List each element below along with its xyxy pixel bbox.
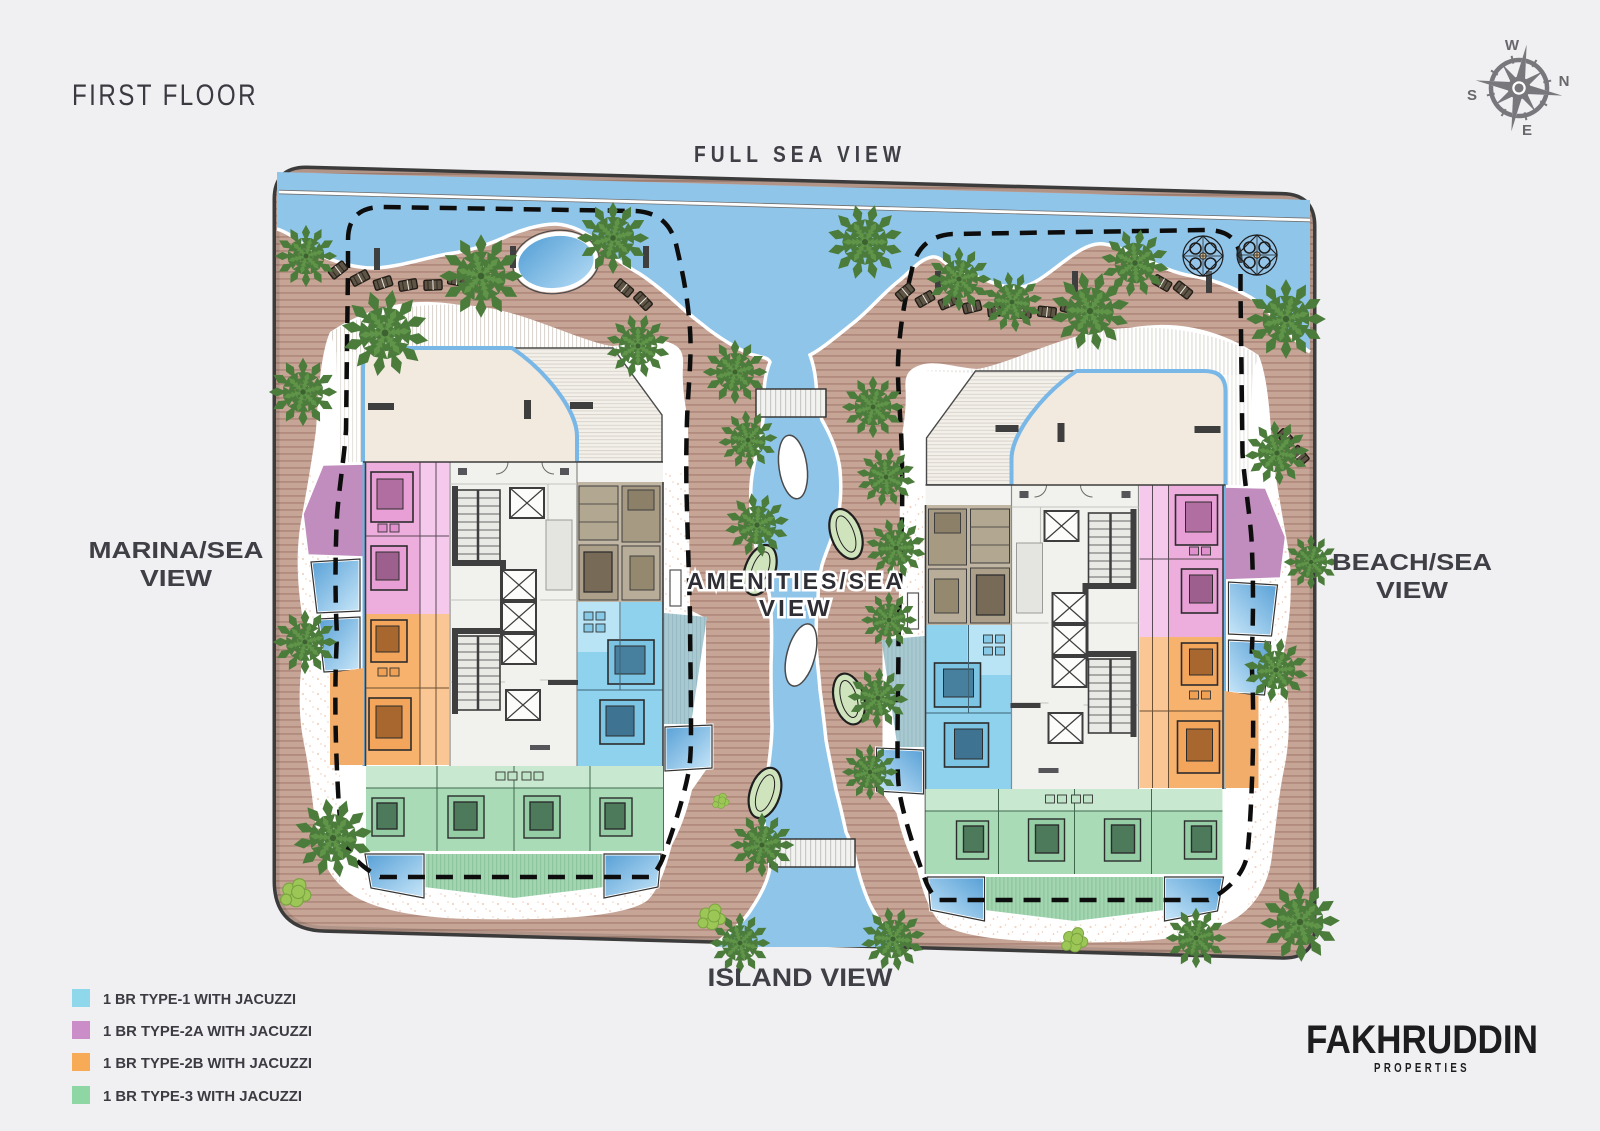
- svg-text:1 BR TYPE-1 WITH JACUZZI: 1 BR TYPE-1 WITH JACUZZI: [103, 991, 296, 1008]
- svg-text:1 BR TYPE-2A WITH JACUZZI: 1 BR TYPE-2A WITH JACUZZI: [103, 1023, 312, 1040]
- svg-text:VIEW: VIEW: [140, 565, 212, 591]
- svg-text:S: S: [1467, 87, 1477, 104]
- svg-text:VIEW: VIEW: [759, 595, 833, 621]
- svg-text:BEACH/SEA: BEACH/SEA: [1332, 549, 1492, 575]
- svg-text:1 BR TYPE-2B WITH JACUZZI: 1 BR TYPE-2B WITH JACUZZI: [103, 1055, 312, 1072]
- svg-text:PROPERTIES: PROPERTIES: [1374, 1060, 1470, 1075]
- svg-text:VIEW: VIEW: [1376, 577, 1448, 603]
- svg-text:E: E: [1522, 122, 1532, 139]
- svg-text:1 BR TYPE-3 WITH JACUZZI: 1 BR TYPE-3 WITH JACUZZI: [103, 1088, 302, 1105]
- svg-text:W: W: [1505, 37, 1520, 54]
- svg-text:N: N: [1559, 73, 1570, 90]
- svg-text:FAKHRUDDIN: FAKHRUDDIN: [1306, 1018, 1538, 1062]
- svg-text:FULL SEA VIEW: FULL SEA VIEW: [694, 141, 906, 167]
- svg-text:MARINA/SEA: MARINA/SEA: [89, 537, 264, 563]
- svg-text:AMENITIES/SEA: AMENITIES/SEA: [687, 568, 905, 594]
- svg-text:ISLAND VIEW: ISLAND VIEW: [708, 964, 893, 992]
- svg-text:FIRST FLOOR: FIRST FLOOR: [72, 79, 258, 112]
